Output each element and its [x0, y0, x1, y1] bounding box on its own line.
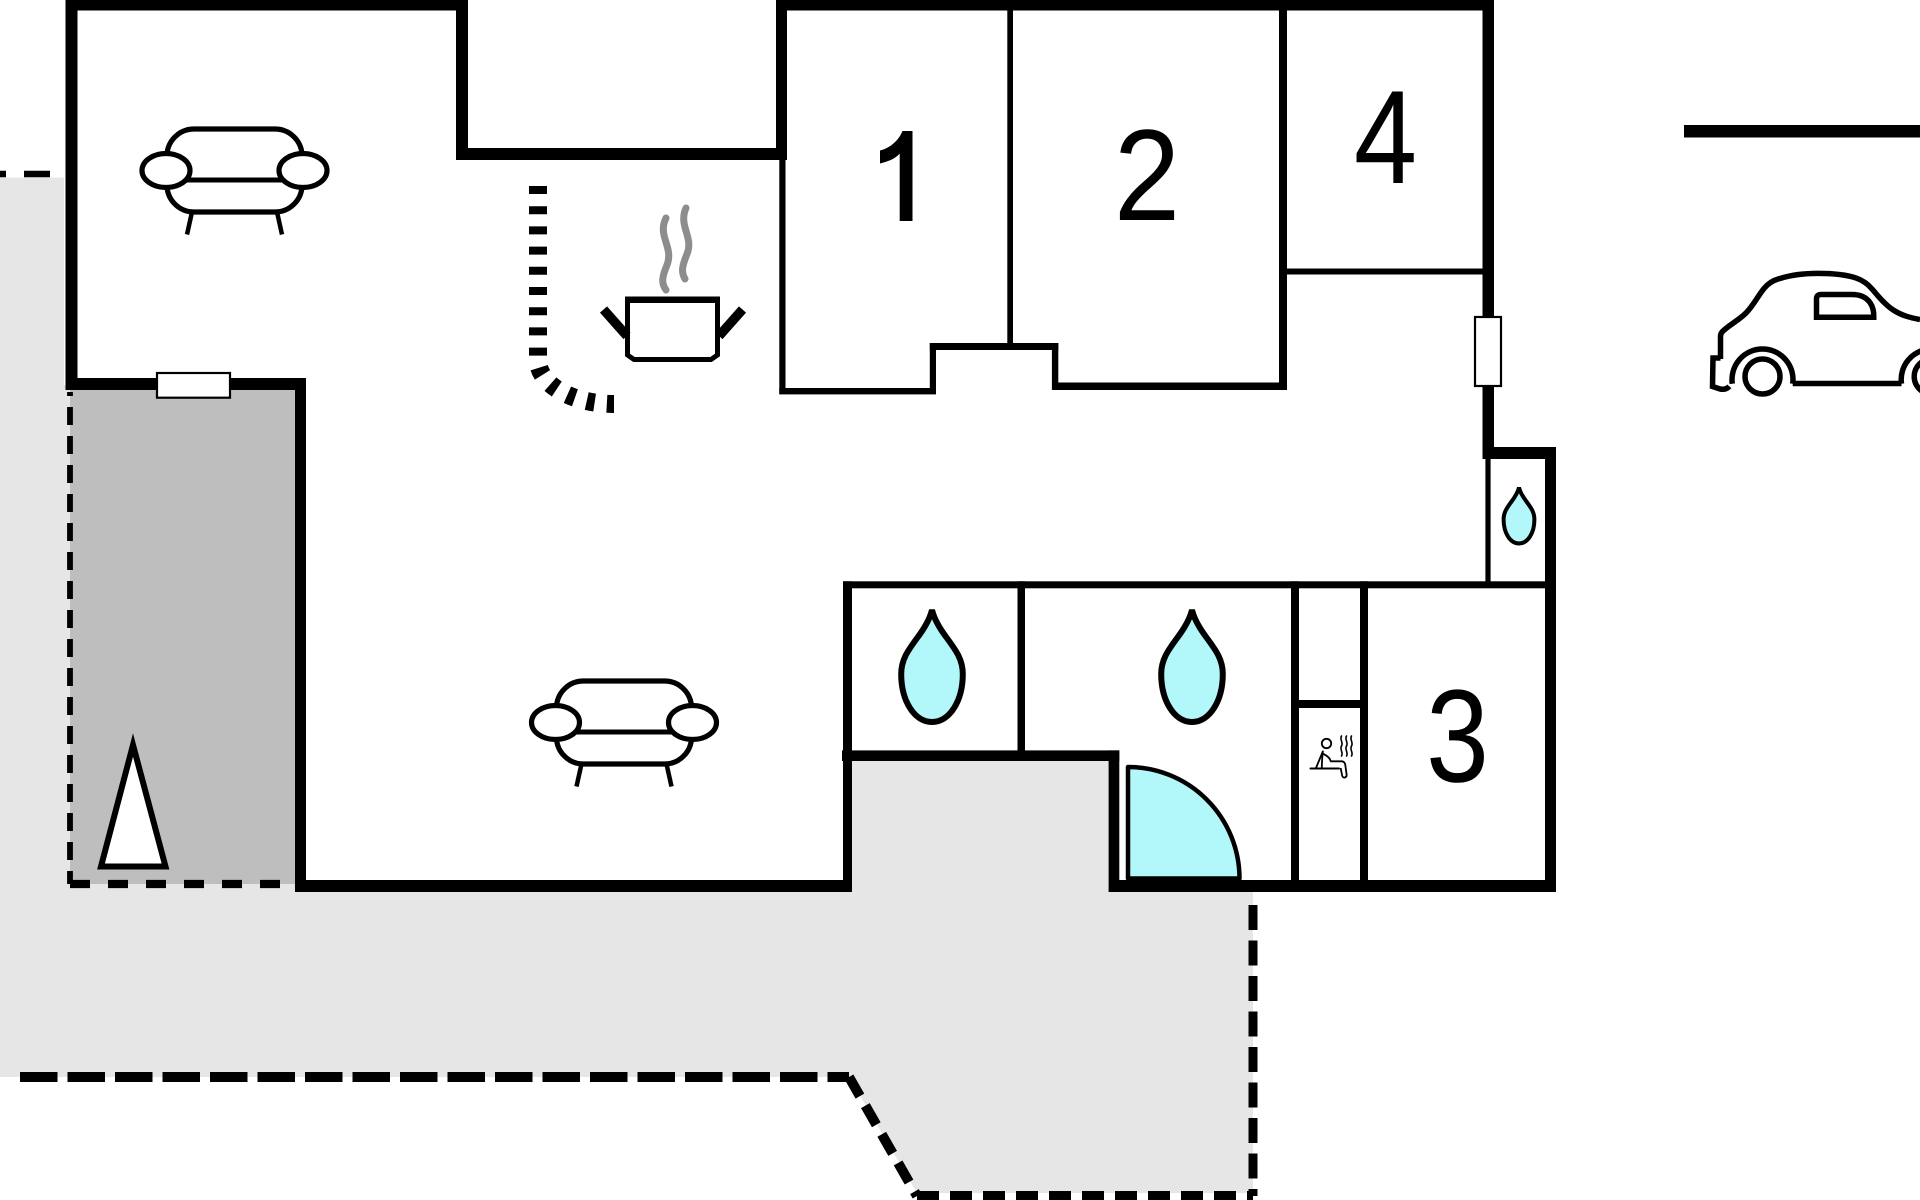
svg-text:4: 4: [1354, 64, 1417, 212]
svg-text:3: 3: [1426, 663, 1489, 810]
svg-text:2: 2: [1114, 103, 1180, 248]
